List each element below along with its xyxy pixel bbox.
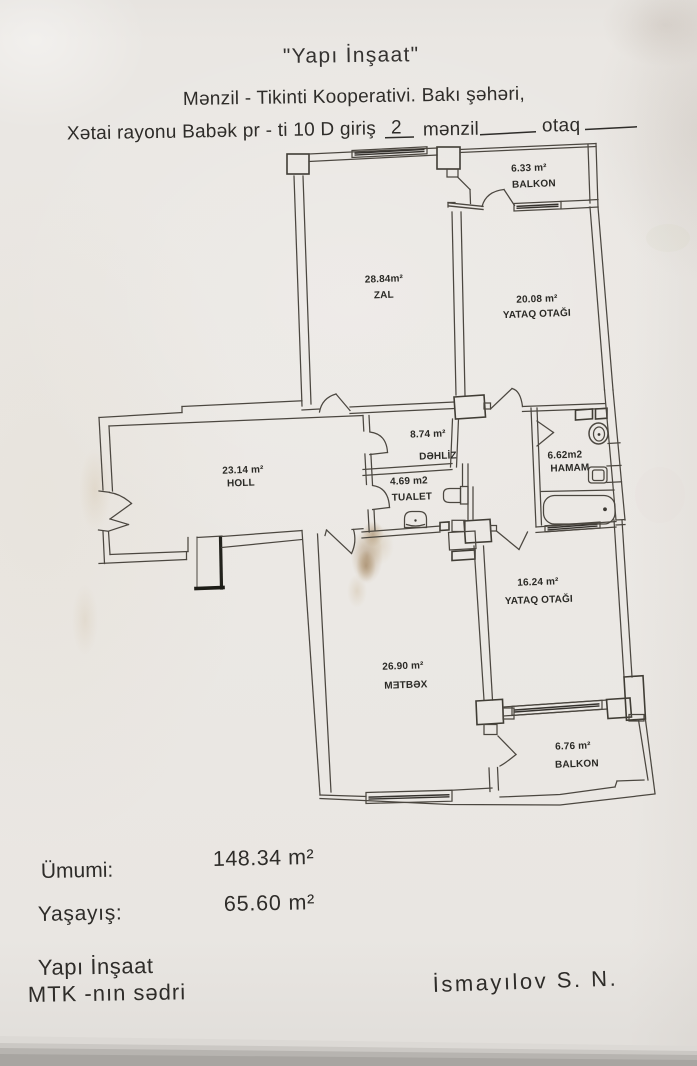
svg-text:YATAQ OTAĞI: YATAQ OTAĞI (503, 306, 571, 321)
svg-text:HOLL: HOLL (227, 478, 255, 490)
svg-text:6.76 m²: 6.76 m² (555, 740, 591, 752)
svg-text:6.62m2: 6.62m2 (547, 449, 582, 461)
svg-text:ZAL: ZAL (374, 290, 394, 302)
svg-text:MTK -nın sədri: MTK -nın sədri (28, 979, 187, 1007)
svg-text:Mənzil - Tikinti Kooperativi.: Mənzil - Tikinti Kooperativi. Bakı şəhər… (183, 84, 525, 110)
svg-text:BALKON: BALKON (512, 178, 556, 191)
svg-text:İsmayılov S. N.: İsmayılov S. N. (432, 966, 618, 997)
svg-text:148.34 m²: 148.34 m² (213, 845, 315, 871)
svg-text:TUALET: TUALET (392, 491, 433, 503)
svg-text:16.24 m²: 16.24 m² (517, 576, 559, 588)
svg-text:BALKON: BALKON (555, 758, 599, 771)
svg-text:26.90 m²: 26.90 m² (382, 660, 424, 672)
svg-text:2: 2 (391, 118, 402, 139)
svg-text:otaq: otaq (542, 115, 581, 137)
svg-text:4.69 m2: 4.69 m2 (390, 475, 428, 487)
svg-text:28.84m²: 28.84m² (365, 273, 404, 285)
svg-text:20.08 m²: 20.08 m² (516, 293, 558, 305)
svg-text:Ümumi:: Ümumi: (41, 859, 114, 883)
svg-text:"Yapı İnşaat": "Yapı İnşaat" (283, 43, 420, 68)
svg-text:6.33 m²: 6.33 m² (511, 162, 547, 174)
svg-text:Yapı İnşaat: Yapı İnşaat (38, 953, 154, 980)
svg-text:mənzil: mənzil (423, 119, 479, 141)
svg-text:Xətai rayonu Babək pr - ti 10: Xətai rayonu Babək pr - ti 10 D giriş (67, 118, 376, 144)
svg-text:DƏHLİZ: DƏHLİZ (419, 448, 457, 462)
svg-text:MƎTBƏX: MƎTBƏX (384, 679, 428, 692)
svg-text:Yaşayış:: Yaşayış: (38, 901, 123, 926)
svg-text:YATAQ OTAĞI: YATAQ OTAĞI (505, 592, 573, 607)
svg-text:65.60 m²: 65.60 m² (224, 890, 316, 916)
svg-text:HAMAM: HAMAM (550, 462, 589, 474)
svg-text:23.14 m²: 23.14 m² (222, 464, 264, 476)
svg-text:8.74 m²: 8.74 m² (410, 428, 446, 440)
